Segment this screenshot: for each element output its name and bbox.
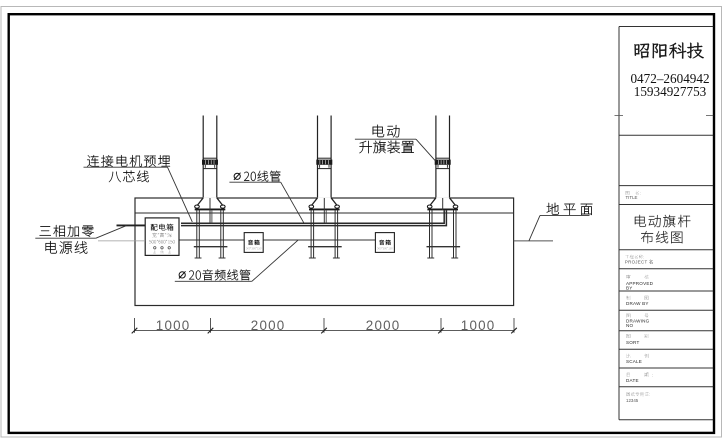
svg-text:NO: NO: [626, 323, 634, 328]
svg-text:12345: 12345: [626, 398, 639, 403]
svg-text:1000: 1000: [156, 318, 191, 333]
svg-text:BY: BY: [626, 286, 633, 291]
svg-text:2000: 2000: [251, 318, 286, 333]
svg-text:2000: 2000: [366, 318, 401, 333]
svg-text:TITLE: TITLE: [626, 195, 638, 200]
svg-text:DRAW BY: DRAW BY: [626, 301, 649, 306]
svg-text:15934927753: 15934927753: [634, 84, 707, 99]
svg-text:SORT: SORT: [626, 340, 639, 345]
svg-text:1000: 1000: [461, 318, 496, 333]
svg-text:DATE: DATE: [626, 378, 639, 383]
svg-text:PROJECT 名: PROJECT 名: [625, 258, 654, 265]
svg-text:SCALE: SCALE: [626, 359, 642, 364]
